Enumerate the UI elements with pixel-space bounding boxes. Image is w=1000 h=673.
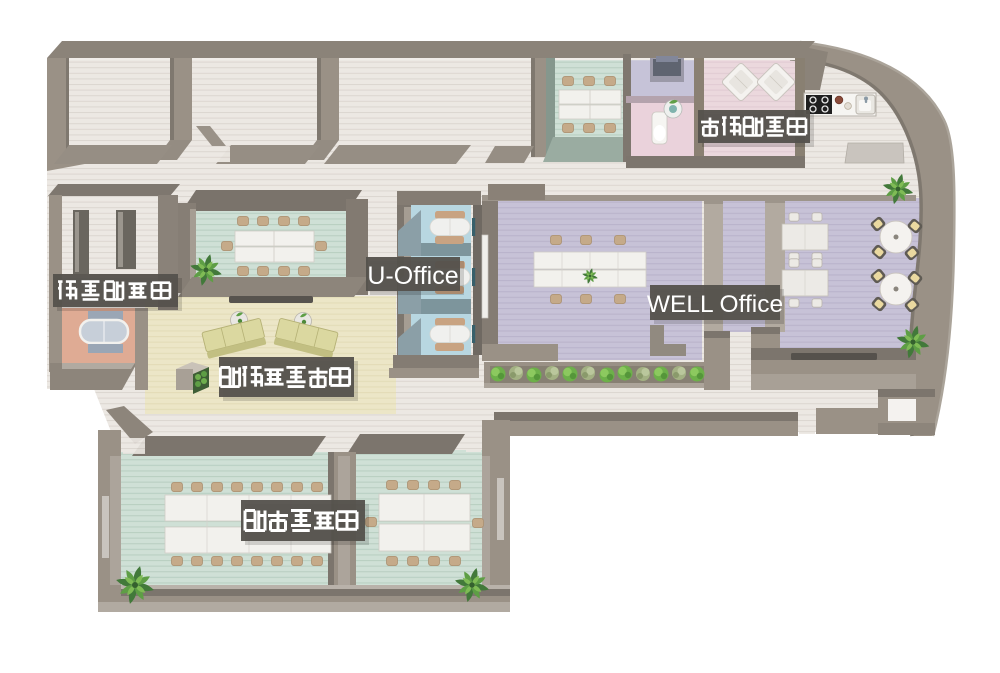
- svg-text:WELL Office: WELL Office: [647, 291, 783, 318]
- svg-text:U-Office: U-Office: [367, 262, 458, 290]
